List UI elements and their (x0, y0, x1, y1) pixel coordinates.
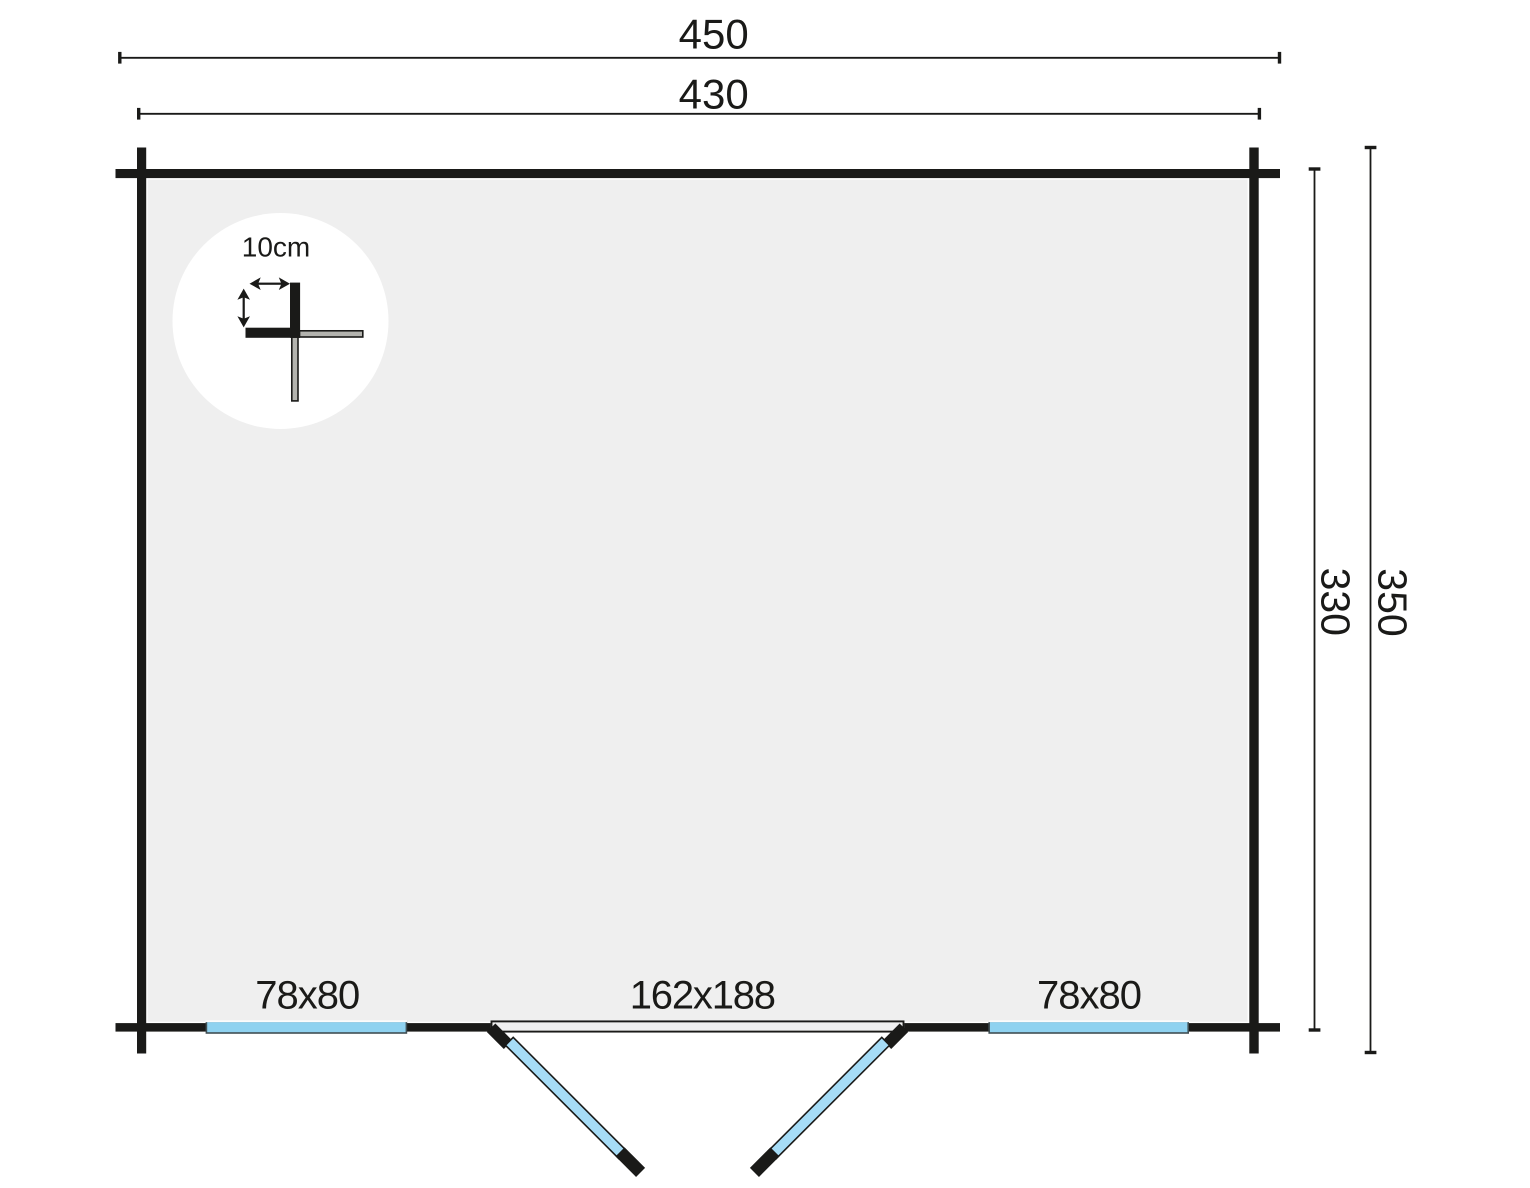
svg-text:78x80: 78x80 (255, 974, 359, 1018)
svg-text:450: 450 (679, 11, 749, 58)
svg-text:10cm: 10cm (242, 232, 310, 263)
svg-text:78x80: 78x80 (1037, 974, 1141, 1018)
svg-text:330: 330 (1313, 568, 1359, 636)
svg-text:350: 350 (1370, 568, 1416, 636)
svg-text:430: 430 (679, 71, 749, 118)
svg-text:162x188: 162x188 (630, 973, 775, 1017)
